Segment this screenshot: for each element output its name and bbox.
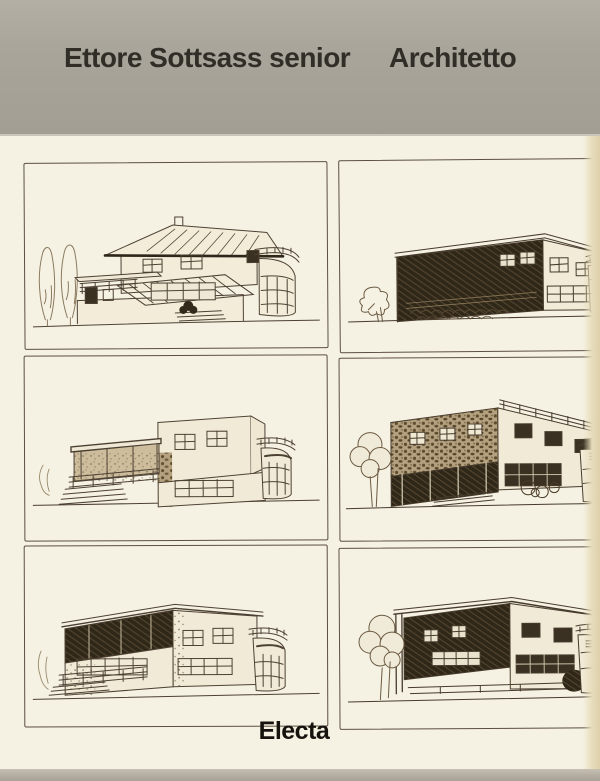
house-sketch-dark-loggia bbox=[339, 159, 600, 352]
house-sketch-stepped-block bbox=[25, 355, 328, 540]
publisher-logo: Electa bbox=[259, 717, 330, 746]
sketch-panel-bottom-right bbox=[338, 546, 600, 730]
house-sketch-upper-loggia bbox=[25, 545, 328, 726]
small-tree bbox=[360, 287, 389, 322]
publisher-footer: Electa bbox=[0, 717, 600, 746]
sketch-panel-top-left bbox=[23, 161, 328, 350]
house-sketch-corner-frame bbox=[339, 547, 600, 729]
poplar-trees bbox=[39, 245, 77, 326]
sketch-panel-top-right bbox=[338, 158, 600, 353]
house-sketch-stone-texture bbox=[340, 357, 600, 540]
book-cover: Ettore Sottsass senior Architetto bbox=[0, 0, 600, 781]
sketch-panel-middle-right bbox=[339, 356, 600, 541]
page-edge-bottom bbox=[0, 769, 600, 781]
leafy-tree bbox=[359, 615, 405, 700]
book-title: Ettore Sottsass senior bbox=[64, 42, 350, 74]
leafy-tree bbox=[350, 432, 391, 506]
book-subtitle: Architetto bbox=[389, 42, 516, 74]
sketch-panel-middle-left bbox=[24, 354, 329, 541]
sketch-panel-bottom-left bbox=[24, 544, 329, 727]
page-edge-right bbox=[583, 136, 600, 769]
house-sketch-hipped-roof-villa bbox=[24, 162, 327, 349]
header-band: Ettore Sottsass senior Architetto bbox=[0, 0, 600, 136]
